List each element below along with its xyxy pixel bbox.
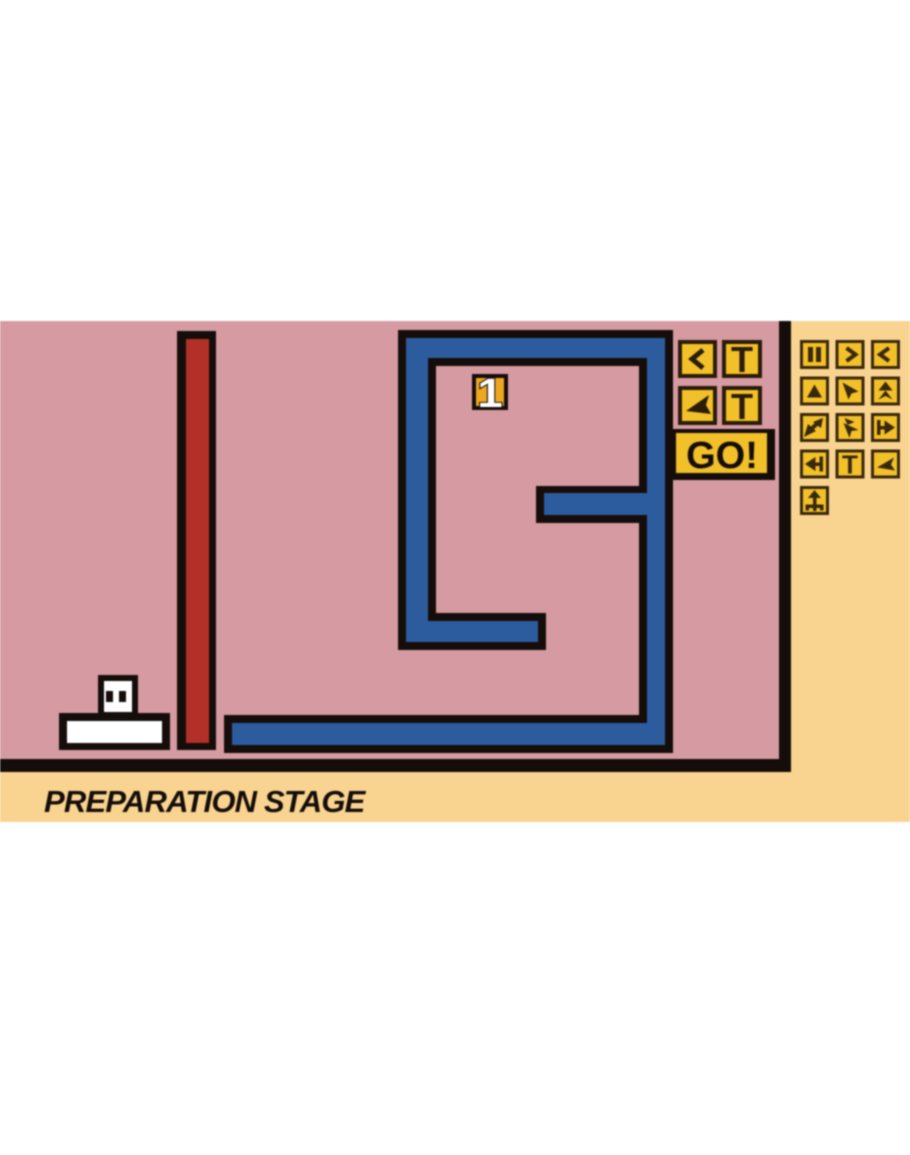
svg-text:T: T [731,386,753,427]
svg-text:T: T [731,339,753,380]
svg-text:PREPARATION STAGE: PREPARATION STAGE [44,784,367,819]
svg-text:1: 1 [477,371,503,416]
svg-text:GO!: GO! [686,435,758,477]
svg-text:T: T [842,450,858,480]
